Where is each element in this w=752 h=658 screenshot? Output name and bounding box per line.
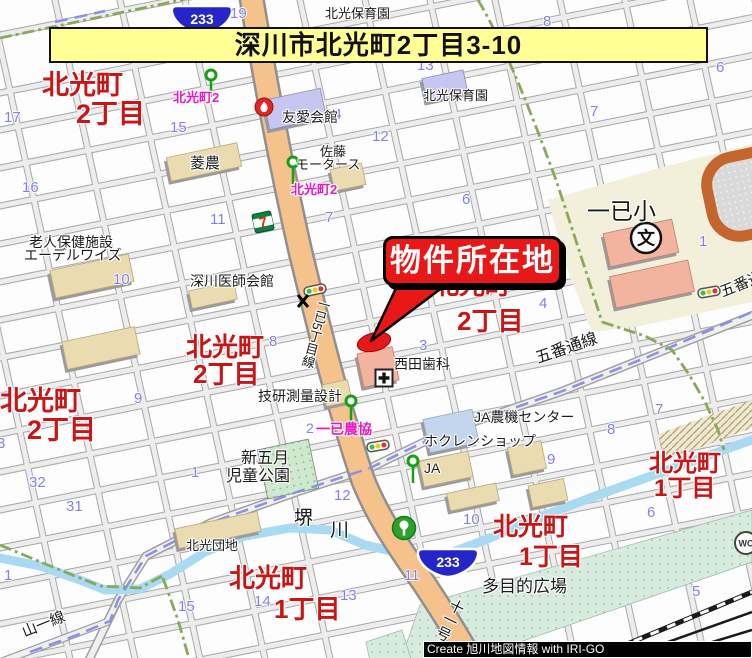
seven-eleven-icon: 7 [252,211,275,234]
map-canvas: 7 WC 文 233 233 [0,0,752,658]
wc-label: WC [739,539,752,549]
building-hishino [163,143,242,185]
route-number: 233 [436,554,460,570]
building-hiiragi [59,327,141,373]
wc-icon: WC [735,532,752,554]
tree-park-icon [393,517,416,540]
hospital-icon [376,370,393,387]
building-hoikuen [419,70,469,106]
building-ja-2 [444,483,500,515]
map-credit: Create 旭川地図情報 with IRI-GO [423,641,752,658]
building-ishikaikan [186,281,238,312]
building-sato-motors [327,163,366,195]
children-park-area [257,439,318,499]
building-hokuren-shop [420,409,480,456]
map-screenshot: 7 WC 文 233 233 北光町2丁目北光保育園198136177北光町21… [0,0,752,658]
address-banner: 深川市北光町2丁目3-10 [49,27,708,63]
school-symbol-icon: 文 [631,223,661,253]
route-number: 233 [190,11,214,27]
building-ja-1 [416,451,474,490]
fire-station-icon [255,98,273,116]
traffic-light-icon [366,440,389,453]
property-callout: 物件所在地 [383,236,562,286]
multipurpose-plaza-area [366,630,412,658]
school-symbol: 文 [637,228,656,249]
